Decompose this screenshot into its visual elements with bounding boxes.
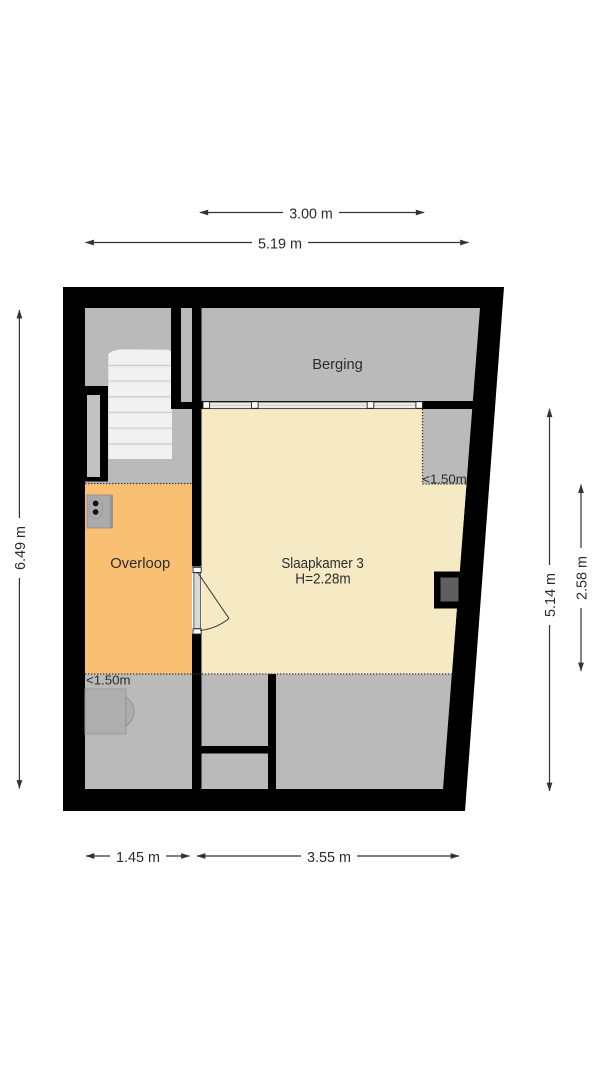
svg-text:2.58 m: 2.58 m: [574, 556, 591, 600]
svg-text:H=2.28m: H=2.28m: [295, 570, 350, 587]
svg-text:<1.50m: <1.50m: [422, 471, 467, 486]
svg-text:1.45 m: 1.45 m: [116, 849, 160, 866]
svg-text:5.14 m: 5.14 m: [542, 573, 559, 617]
svg-text:3.55 m: 3.55 m: [307, 849, 351, 866]
svg-text:6.49 m: 6.49 m: [12, 526, 29, 570]
svg-text:Overloop: Overloop: [110, 555, 170, 572]
svg-text:3.00 m: 3.00 m: [289, 205, 333, 222]
svg-text:<1.50m: <1.50m: [86, 672, 131, 687]
svg-text:Berging: Berging: [312, 356, 363, 373]
svg-text:5.19 m: 5.19 m: [258, 235, 302, 252]
